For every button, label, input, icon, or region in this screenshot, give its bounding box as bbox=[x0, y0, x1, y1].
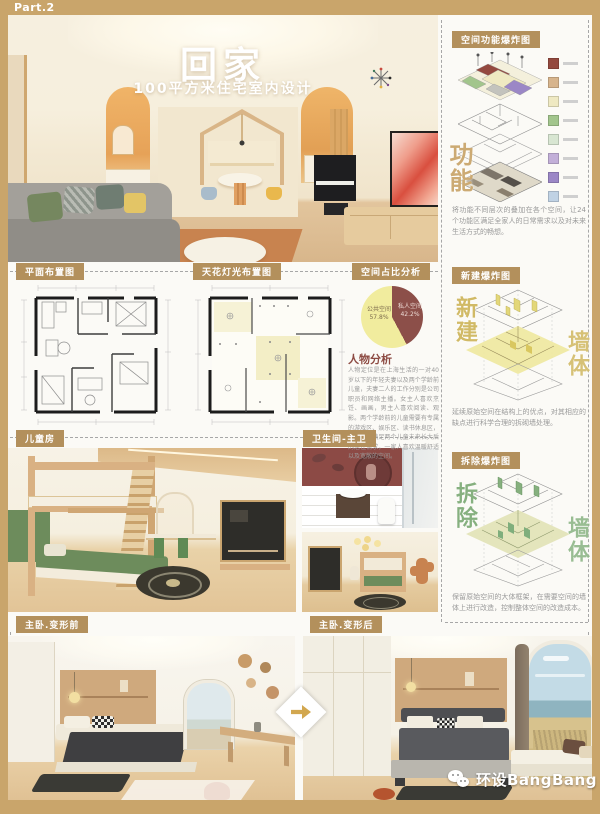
legend-item bbox=[548, 77, 578, 88]
legend-text-bar bbox=[563, 62, 578, 65]
legend-swatch bbox=[548, 191, 559, 202]
wechat-icon bbox=[448, 768, 470, 790]
legend-item bbox=[548, 191, 578, 202]
new-description: 延续原始空间在结构上的优点，对其相应的缺点进行科学合理的拆砌墙处理。 bbox=[452, 407, 586, 429]
design-poster: { "page": { "part_label": "Part.2", "bra… bbox=[0, 0, 600, 814]
function-watermark: 功能 bbox=[442, 142, 477, 194]
legend-swatch bbox=[548, 77, 559, 88]
legend-item bbox=[548, 58, 578, 69]
wardrobe-left bbox=[8, 642, 55, 762]
section-header-new: 新建爆炸图 bbox=[452, 267, 520, 284]
dark-rug-before bbox=[31, 774, 131, 792]
pillow-pattern bbox=[63, 186, 95, 215]
blackboard-2 bbox=[308, 546, 342, 592]
kids-chair-2 bbox=[178, 538, 188, 558]
new-watermark-right: 墙体 bbox=[560, 330, 592, 378]
toy-shelf bbox=[220, 564, 290, 570]
legend-swatch bbox=[548, 96, 559, 107]
left-arch-alcove bbox=[106, 87, 150, 183]
legend-item bbox=[548, 134, 578, 145]
legend-item bbox=[548, 172, 578, 183]
legend-swatch bbox=[548, 58, 559, 69]
console-desk bbox=[220, 732, 295, 762]
kids-room-header: 儿童房 bbox=[16, 430, 64, 447]
legend-swatch bbox=[548, 172, 559, 183]
round-rug bbox=[136, 566, 210, 600]
dining-nook bbox=[196, 107, 288, 185]
floor-plan-drawing bbox=[16, 282, 176, 428]
demolish-watermark-left: 拆除 bbox=[448, 482, 480, 530]
pie-header: 空间占比分析 bbox=[352, 263, 430, 280]
right-column-bottom-border bbox=[445, 622, 588, 623]
legend-text-bar bbox=[563, 176, 578, 179]
cactus-decor bbox=[416, 558, 428, 584]
curtain bbox=[515, 644, 529, 760]
bathroom-header: 卫生间-主卫 bbox=[303, 430, 376, 447]
legend-text-bar bbox=[563, 81, 578, 84]
legend-text-bar bbox=[563, 100, 578, 103]
dark-blanket bbox=[62, 732, 188, 766]
gray-duvet bbox=[399, 728, 509, 762]
legend-item bbox=[548, 153, 578, 164]
desk-vase bbox=[254, 722, 261, 732]
pillow-yellow bbox=[124, 193, 146, 213]
wall-shelf bbox=[68, 508, 164, 513]
right-arrow-icon bbox=[291, 705, 311, 719]
bed-structure bbox=[360, 552, 406, 592]
legend-item bbox=[548, 115, 578, 126]
bunny-doll bbox=[350, 566, 359, 580]
bedroom-before-header: 主卧.变形前 bbox=[16, 616, 88, 633]
new-watermark-left: 新建 bbox=[448, 296, 480, 344]
pillow-gray bbox=[95, 184, 125, 210]
wall-circles-decor bbox=[236, 652, 288, 712]
toilet bbox=[378, 498, 395, 524]
legend-text-bar bbox=[563, 138, 578, 141]
pendant-light bbox=[74, 672, 75, 694]
pillow-green bbox=[27, 191, 64, 222]
persona-text: 人物定位是在上海生活的一对40岁以下的年轻夫妻以及两个学龄前儿童，夫妻二人的工作… bbox=[348, 366, 439, 462]
tv-screen bbox=[390, 131, 438, 207]
right-column-left-border bbox=[441, 20, 442, 622]
arch-mirror bbox=[112, 125, 134, 155]
pie-label-private-pct: 42.2% bbox=[394, 311, 426, 319]
pie-label-public-pct: 57.8% bbox=[363, 314, 395, 322]
chalkboard bbox=[220, 500, 286, 562]
pie-label-public: 公共空间 57.8% bbox=[363, 306, 395, 323]
demolish-description: 保留原始空间的大体框架，在需要空间的墙体上进行改造，控制整体空间的改造成本。 bbox=[452, 592, 586, 614]
section-header-demolish: 拆除爆炸图 bbox=[452, 452, 520, 469]
section-header-function: 空间功能爆炸图 bbox=[452, 31, 540, 48]
round-rug-2 bbox=[354, 594, 406, 610]
persona-heading: 人物分析 bbox=[348, 351, 392, 367]
function-description: 将功能不同层次的叠加在各个空间，让24个功能区满足全家人的日常需求以及对未来生活… bbox=[452, 205, 586, 238]
demolish-watermark-right: 墙体 bbox=[560, 516, 592, 564]
legend-item bbox=[548, 96, 578, 107]
bed-before bbox=[56, 724, 186, 772]
pendant-light-2 bbox=[411, 658, 412, 684]
cove-light-arc bbox=[38, 636, 268, 670]
daybed-pillow-cream bbox=[579, 746, 592, 758]
legend-swatch bbox=[548, 153, 559, 164]
coffee-table bbox=[184, 237, 266, 262]
dining-table-base bbox=[234, 183, 246, 205]
legend-text-bar bbox=[563, 195, 578, 198]
vanity bbox=[336, 494, 370, 518]
pie-label-private-name: 私人空间 bbox=[394, 303, 426, 311]
ceiling-lights bbox=[354, 536, 388, 550]
stool-yellow bbox=[266, 187, 282, 200]
pie-label-public-name: 公共空间 bbox=[363, 306, 395, 314]
arch-vanity bbox=[106, 169, 150, 183]
brand-watermark: 环设BangBang bbox=[448, 768, 597, 790]
tv-console bbox=[344, 207, 438, 245]
living-room-photo: 回家 100平方米住宅室内设计 bbox=[8, 15, 438, 262]
arch-decal bbox=[156, 492, 194, 538]
sofa bbox=[8, 183, 172, 262]
bedroom-before-photo bbox=[8, 636, 295, 800]
pie-label-private: 私人空间 42.2% bbox=[394, 303, 426, 320]
ceiling-plan-drawing bbox=[190, 282, 350, 428]
brand-name: 环设BangBang bbox=[476, 769, 597, 790]
stool-blue bbox=[201, 187, 217, 200]
bed-pillows bbox=[64, 716, 90, 728]
ceiling-plan-header: 天花灯光布置图 bbox=[193, 263, 281, 280]
legend-text-bar bbox=[563, 119, 578, 122]
bed-pillow bbox=[44, 544, 66, 556]
piano bbox=[314, 155, 356, 201]
kids-chair-1 bbox=[154, 538, 164, 558]
kids-room-photo bbox=[8, 448, 296, 612]
poster-subtitle: 100平方米住宅室内设计 bbox=[8, 78, 438, 98]
floor-plan-header: 平面布置图 bbox=[16, 263, 84, 280]
legend-swatch bbox=[548, 134, 559, 145]
legend-swatch bbox=[548, 115, 559, 126]
orange-stool-after bbox=[373, 788, 395, 800]
function-legend bbox=[548, 58, 578, 210]
white-rug bbox=[121, 780, 255, 800]
part-label: Part.2 bbox=[14, 1, 55, 14]
kids-room-photo-2 bbox=[302, 532, 438, 612]
bedroom-after-header: 主卧.变形后 bbox=[310, 616, 382, 633]
legend-text-bar bbox=[563, 157, 578, 160]
